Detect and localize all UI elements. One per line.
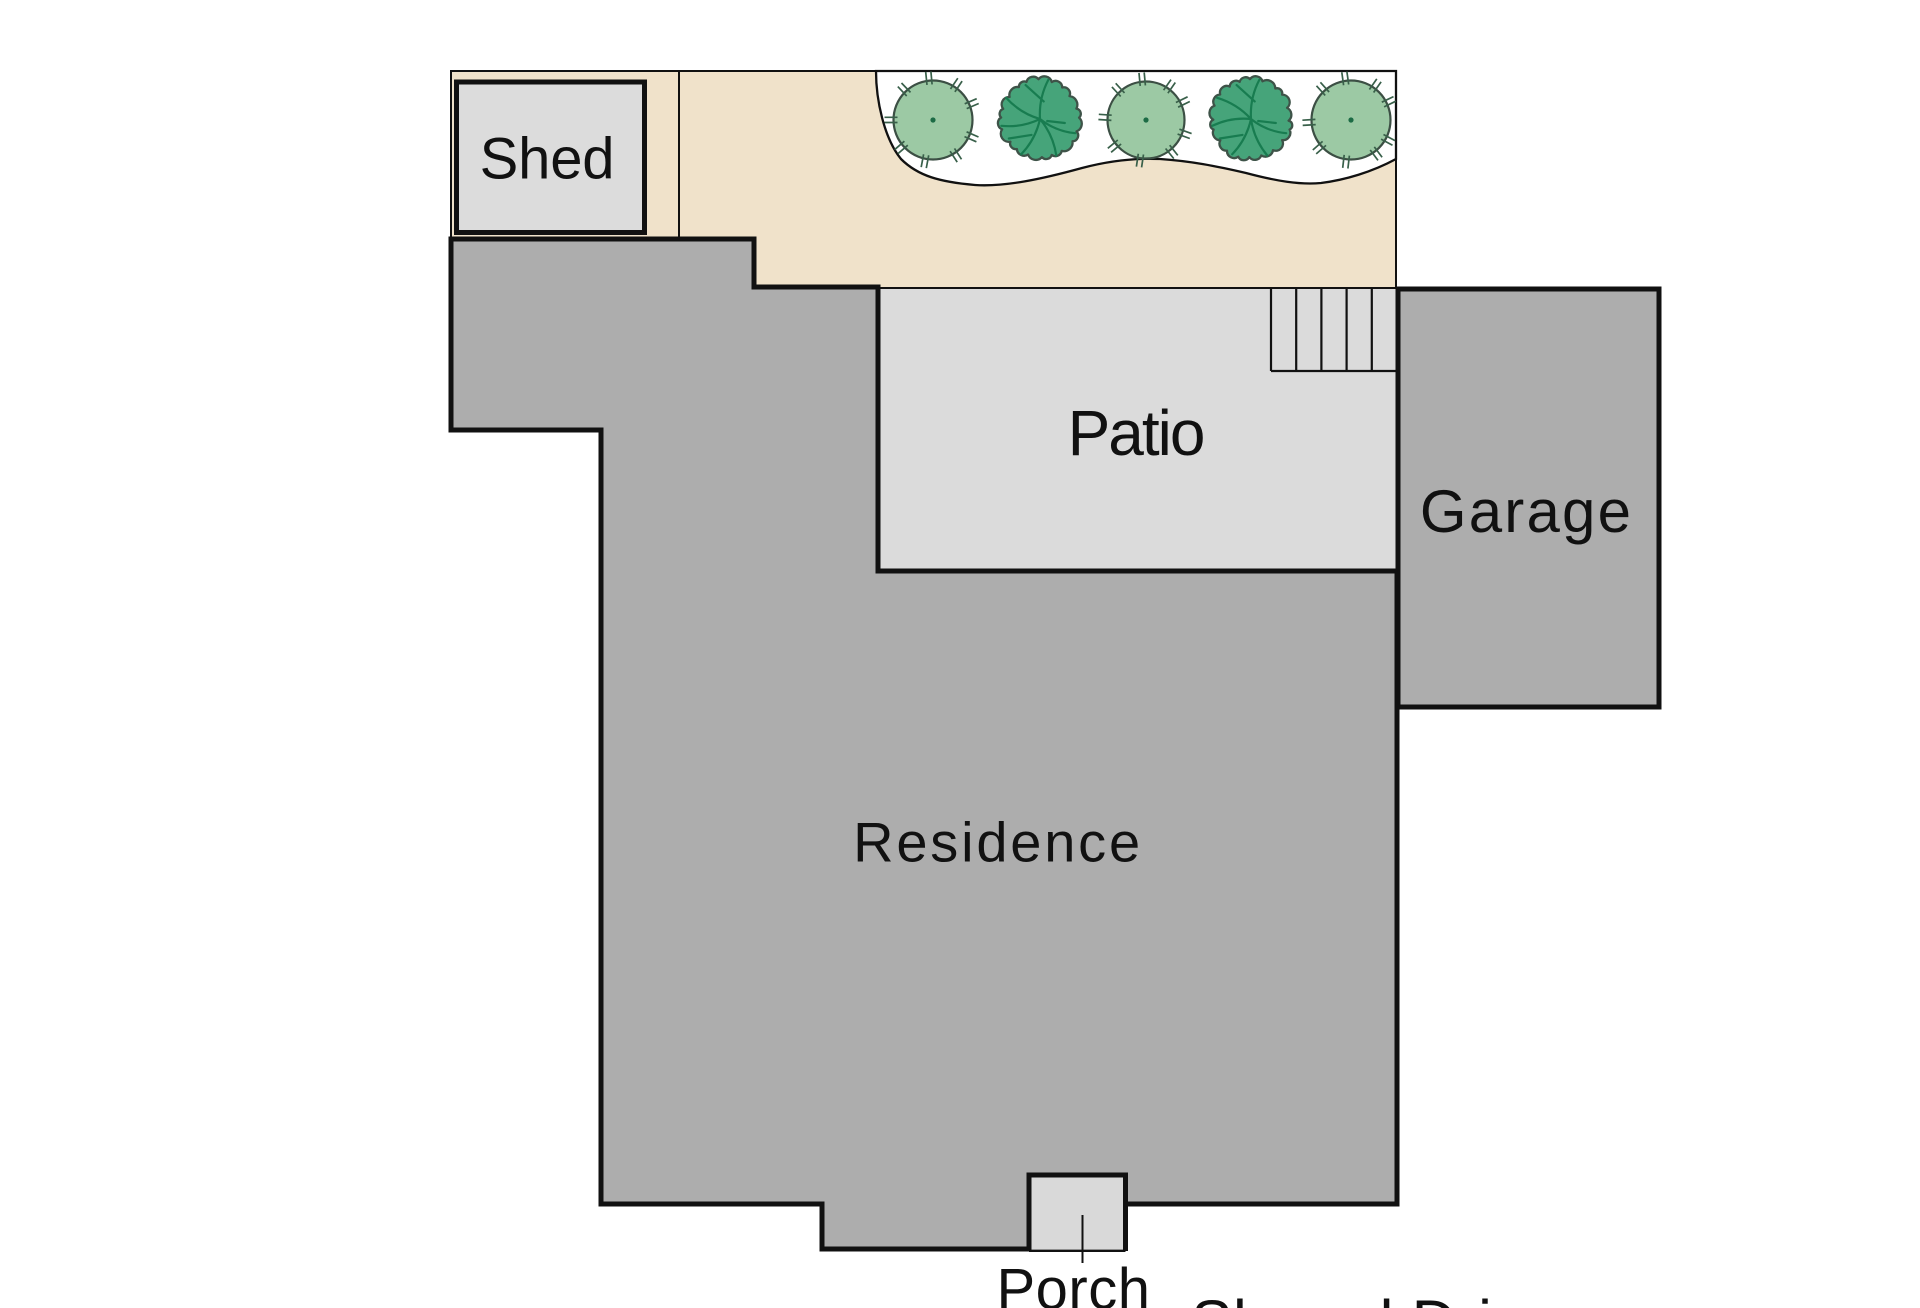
- svg-text:Shed: Shed: [480, 127, 615, 192]
- svg-text:Porch: Porch: [996, 1257, 1150, 1308]
- svg-text:Residence: Residence: [853, 811, 1143, 874]
- svg-text:Shared Drive: Shared Drive: [1191, 1289, 1559, 1308]
- svg-text:Patio: Patio: [1068, 397, 1204, 469]
- svg-text:Garage: Garage: [1420, 478, 1633, 545]
